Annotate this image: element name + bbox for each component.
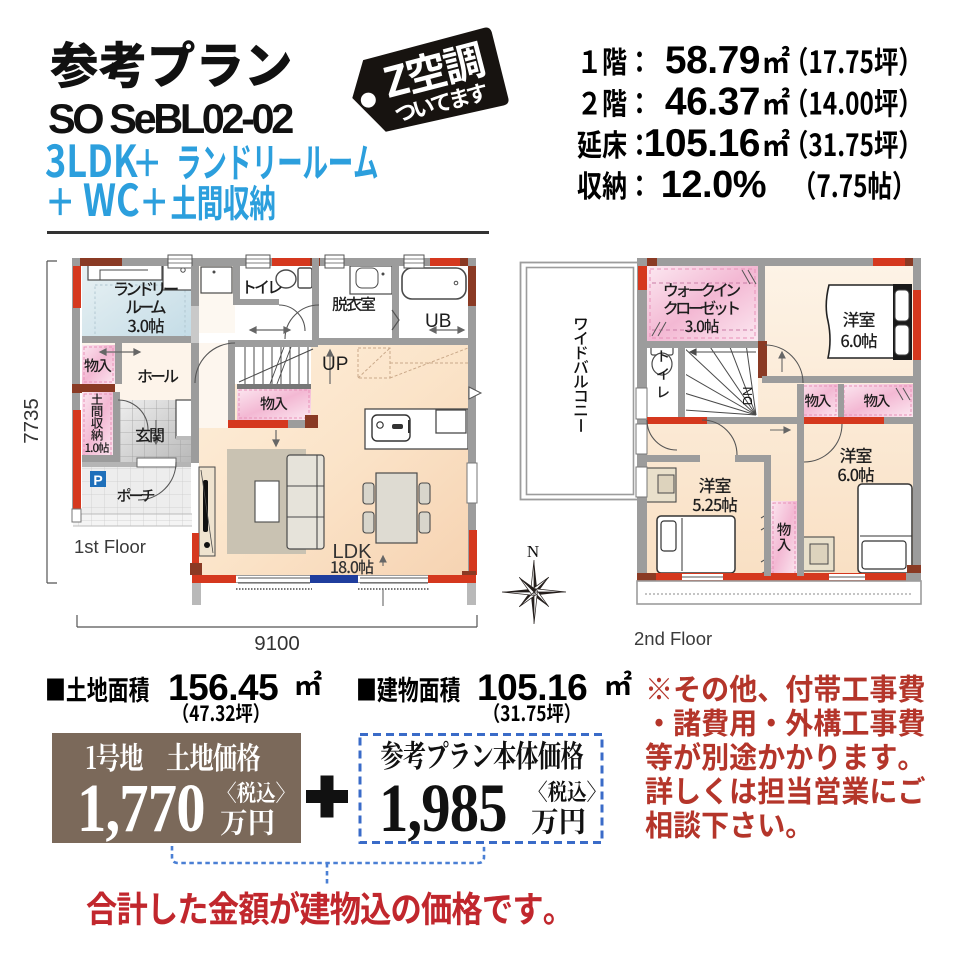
svg-text:UP: UP — [322, 354, 348, 375]
svg-text:58.79: 58.79 — [665, 39, 760, 82]
svg-text:1,985: 1,985 — [379, 770, 507, 847]
svg-text:UB: UB — [425, 311, 451, 332]
svg-text:7735: 7735 — [20, 398, 43, 444]
svg-text:105.16: 105.16 — [477, 667, 587, 708]
svg-text:156.45: 156.45 — [168, 667, 278, 708]
svg-text:2nd Floor: 2nd Floor — [634, 628, 712, 649]
svg-text:N: N — [527, 542, 539, 561]
svg-text:DN: DN — [740, 387, 755, 406]
svg-text:LDK: LDK — [333, 541, 373, 563]
svg-text:105.16: 105.16 — [644, 122, 760, 165]
svg-text:1st Floor: 1st Floor — [74, 536, 146, 557]
svg-text:P: P — [93, 472, 102, 488]
svg-text:46.37: 46.37 — [665, 81, 760, 124]
svg-text:1,770: 1,770 — [77, 770, 205, 847]
svg-text:SO SeBL02-02: SO SeBL02-02 — [48, 95, 293, 142]
svg-text:9100: 9100 — [254, 632, 300, 655]
svg-text:12.0%: 12.0% — [661, 164, 766, 206]
